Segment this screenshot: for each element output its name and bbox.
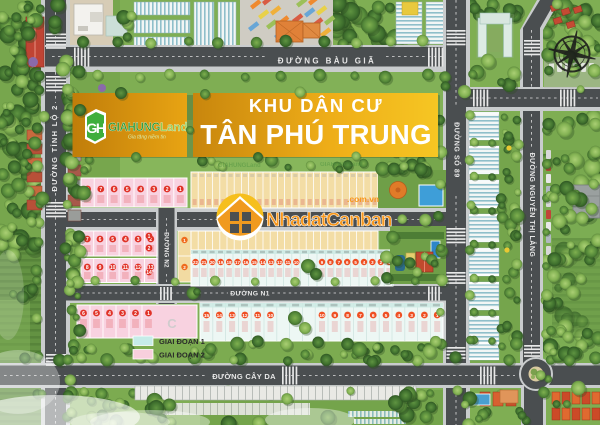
svg-text:9: 9 bbox=[333, 313, 336, 319]
svg-text:2: 2 bbox=[423, 313, 426, 319]
svg-text:11: 11 bbox=[286, 260, 291, 265]
svg-text:3: 3 bbox=[410, 313, 413, 319]
svg-text:KHU DÂN CƯ: KHU DÂN CƯ bbox=[249, 95, 383, 116]
svg-text:4: 4 bbox=[139, 187, 142, 193]
svg-text:Land: Land bbox=[160, 122, 187, 134]
svg-text:7: 7 bbox=[99, 187, 102, 193]
svg-text:ĐƯỜNG N1: ĐƯỜNG N1 bbox=[230, 289, 270, 298]
svg-text:12: 12 bbox=[135, 265, 141, 271]
svg-text:12: 12 bbox=[277, 260, 282, 265]
svg-text:3: 3 bbox=[152, 187, 155, 193]
svg-text:19: 19 bbox=[218, 260, 223, 265]
svg-text:4: 4 bbox=[108, 311, 111, 317]
svg-text:9: 9 bbox=[99, 265, 102, 271]
svg-text:6: 6 bbox=[82, 311, 85, 317]
svg-text:GH: GH bbox=[87, 120, 106, 136]
svg-text:6: 6 bbox=[99, 237, 102, 243]
svg-text:GIAHUNGLand: GIAHUNGLand bbox=[218, 163, 261, 169]
svg-text:3: 3 bbox=[121, 311, 124, 317]
svg-text:4: 4 bbox=[124, 237, 127, 243]
svg-text:13: 13 bbox=[269, 260, 274, 265]
svg-text:ĐƯỜNG CÂY DA: ĐƯỜNG CÂY DA bbox=[212, 372, 276, 381]
svg-text:1: 1 bbox=[179, 187, 182, 193]
svg-text:5: 5 bbox=[385, 313, 388, 319]
svg-text:3: 3 bbox=[137, 237, 140, 243]
svg-text:14: 14 bbox=[217, 313, 223, 319]
svg-text:GIAI ĐOẠN 2: GIAI ĐOẠN 2 bbox=[159, 351, 205, 360]
svg-text:6: 6 bbox=[113, 187, 116, 193]
svg-text:1: 1 bbox=[183, 238, 186, 243]
svg-text:ĐƯỜNG N2: ĐƯỜNG N2 bbox=[163, 232, 171, 268]
svg-text:2: 2 bbox=[134, 311, 137, 317]
svg-text:Gia tăng niềm tin: Gia tăng niềm tin bbox=[128, 135, 166, 141]
svg-text:10: 10 bbox=[110, 265, 116, 271]
svg-text:GIAHUNG: GIAHUNG bbox=[108, 122, 161, 134]
svg-text:20: 20 bbox=[210, 260, 215, 265]
svg-text:14: 14 bbox=[260, 260, 265, 265]
svg-text:10: 10 bbox=[319, 313, 325, 319]
svg-text:8: 8 bbox=[346, 313, 349, 319]
svg-text:6: 6 bbox=[372, 313, 375, 319]
svg-text:10: 10 bbox=[268, 313, 274, 319]
svg-text:11: 11 bbox=[123, 265, 129, 271]
svg-text:TÂN PHÚ TRUNG: TÂN PHÚ TRUNG bbox=[200, 119, 432, 150]
svg-text:11: 11 bbox=[255, 313, 260, 319]
svg-text:8: 8 bbox=[86, 265, 89, 271]
svg-text:2: 2 bbox=[148, 246, 151, 252]
svg-text:C: C bbox=[167, 316, 177, 331]
svg-text:13: 13 bbox=[229, 313, 235, 319]
svg-text:ĐƯỜNG BÀU GIÃ: ĐƯỜNG BÀU GIÃ bbox=[278, 57, 376, 66]
svg-text:5: 5 bbox=[126, 187, 129, 193]
svg-text:ĐƯỜNG NGUYỄN THỊ LẮNG: ĐƯỜNG NGUYỄN THỊ LẮNG bbox=[528, 153, 537, 258]
svg-text:18: 18 bbox=[227, 260, 232, 265]
svg-text:22: 22 bbox=[193, 260, 198, 265]
svg-text:1: 1 bbox=[148, 234, 151, 240]
svg-text:21: 21 bbox=[201, 260, 206, 265]
svg-text:17: 17 bbox=[235, 260, 240, 265]
svg-text:5: 5 bbox=[111, 237, 114, 243]
svg-text:10: 10 bbox=[294, 260, 299, 265]
svg-text:GIAI ĐOẠN 1: GIAI ĐOẠN 1 bbox=[159, 337, 205, 346]
svg-text:GIAHUNGLand: GIAHUNGLand bbox=[320, 162, 363, 168]
svg-text:ĐƯỜNG TỈNH LỘ 2: ĐƯỜNG TỈNH LỘ 2 bbox=[50, 104, 59, 191]
svg-text:1: 1 bbox=[147, 311, 150, 317]
svg-text:15: 15 bbox=[252, 260, 257, 265]
svg-text:12: 12 bbox=[242, 313, 248, 319]
svg-text:2: 2 bbox=[183, 265, 186, 270]
svg-text:14: 14 bbox=[146, 270, 152, 276]
svg-text:2: 2 bbox=[166, 187, 169, 193]
svg-text:16: 16 bbox=[243, 260, 248, 265]
svg-text:5: 5 bbox=[95, 311, 98, 317]
svg-text:7: 7 bbox=[359, 313, 362, 319]
svg-text:NhadatCanban: NhadatCanban bbox=[266, 209, 392, 231]
svg-text:.com.vn: .com.vn bbox=[347, 194, 379, 204]
svg-text:4: 4 bbox=[397, 313, 400, 319]
svg-text:15: 15 bbox=[204, 313, 210, 319]
